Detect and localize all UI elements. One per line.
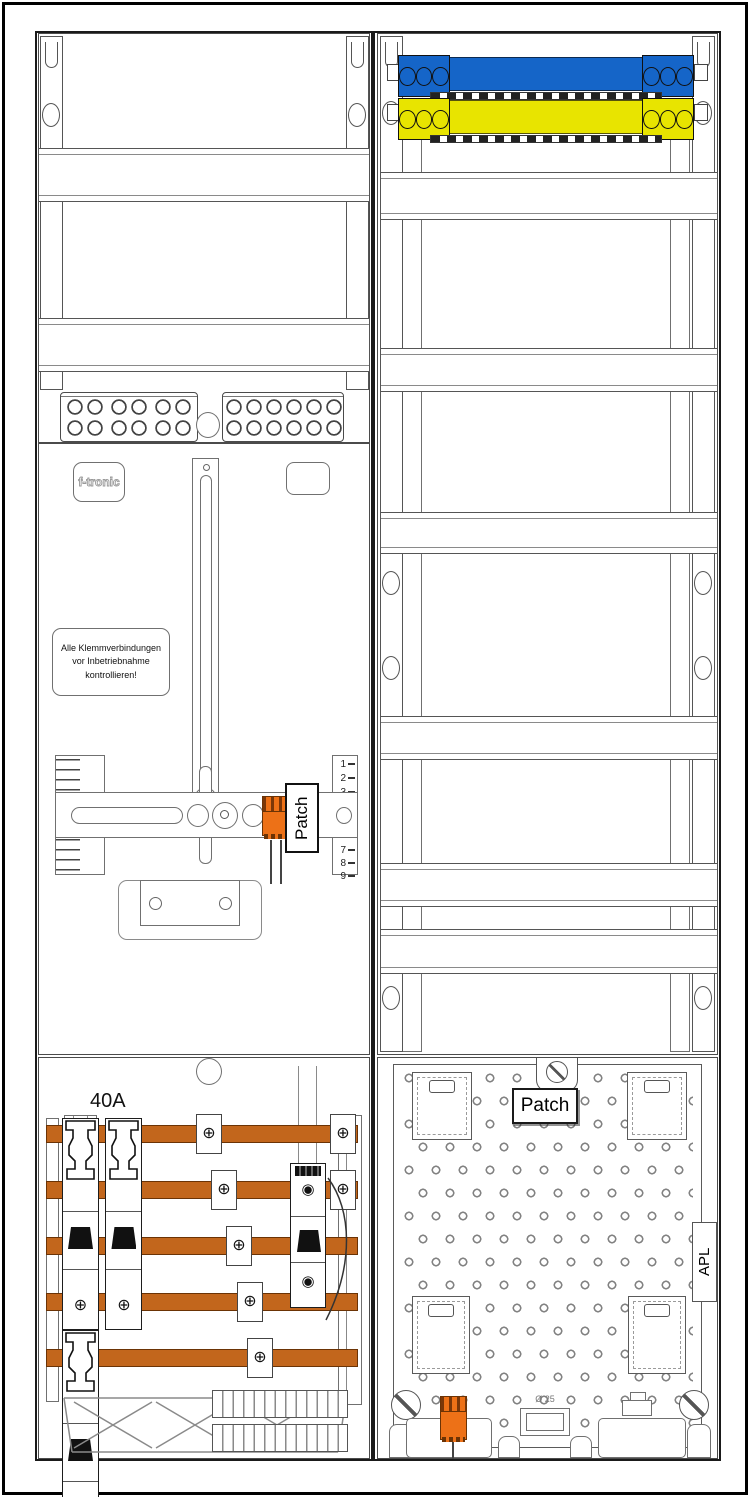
fuse-link-icon [63,1331,98,1393]
screw-icon: ⊕ [202,1126,215,1142]
ruler-number: 7 [340,845,346,856]
terminal-holes [153,396,193,438]
sls-switch: ⊕ [105,1118,142,1330]
cutout-slot [428,1304,454,1317]
terminal-hole [660,110,677,129]
terminal-hole [416,110,433,129]
terminal-screw: ⊕ [63,1297,98,1315]
pe-bar-teeth [430,135,662,143]
bar-clip [694,104,708,121]
din-rail-row [380,512,718,554]
pe-bar-endblock [642,98,694,140]
patch-plate-label: Patch [512,1088,578,1124]
blank-badge [286,462,330,495]
wire [270,840,272,884]
terminal-strip-row [212,1390,348,1418]
neutral-bar-endblock [398,55,450,97]
patch-connector-label: Patch [285,783,319,853]
bottom-cutout [598,1418,686,1458]
sls-switch: ⊕ [62,1118,99,1330]
patch-connector [440,1412,467,1440]
screw-icon: ◉ [301,1273,314,1290]
terminal-holes [109,396,149,438]
terminal-hole [676,67,693,86]
grommet-size-label: Ø 25 [518,1394,572,1404]
terminal-hole [416,67,433,86]
hole [149,897,162,910]
pe-busbar [398,100,694,134]
hole [219,897,232,910]
grommet-inner [526,1413,564,1431]
divider-line [63,1481,98,1482]
rail-hole [382,656,400,680]
pe-bar-endblock [398,98,450,140]
screw-icon: ⊕ [232,1238,245,1254]
terminal-screw: ⊕ [106,1297,141,1315]
plate-cutout [412,1296,470,1374]
ruler-mark: 7 [340,844,355,856]
busbar-clamp: ⊕ [247,1338,273,1378]
rail-hole [694,571,712,595]
inner-post-left [402,130,422,1052]
fuse-link-icon [106,1119,141,1181]
din-rail-row [380,348,718,392]
divider-line [106,1269,141,1270]
hole [187,804,209,827]
mcb-clamp [295,1166,321,1176]
fuse-rating-label: 40A [90,1090,126,1113]
rail-hole [42,103,60,127]
wire [280,840,282,884]
end-ring [336,807,352,824]
plate-cutout [628,1296,686,1374]
patch-connector-teeth [442,1437,465,1442]
neutral-busbar [398,57,694,91]
terminal-holes [65,396,105,438]
column-divider [371,33,375,1459]
terminal-block-left [60,392,198,442]
terminal-holes [284,396,342,438]
left-top-frame [38,33,370,443]
brand-badge: f-tronic [73,462,125,502]
sls-switch-group: ⊕ ⊕ ⊕ [62,1118,177,1328]
terminal-block-right [222,392,344,442]
divider-line [63,1211,98,1212]
patch-connector-cap [440,1396,467,1412]
cable-grommet [196,412,220,438]
terminal-hole [399,67,416,86]
neutral-bar-endblock [642,55,694,97]
screw-icon: ◉ [301,1181,314,1198]
rail-slot [351,42,364,68]
adjust-slot [71,807,183,824]
screw-icon: ⊕ [253,1350,266,1366]
screw-icon: ⊕ [74,1297,87,1314]
warning-label: Alle Klemmverbindungen vor Inbetriebnahm… [52,628,170,696]
grommet-25 [520,1408,570,1436]
busbar-clamp: ⊕ [226,1226,252,1266]
bar-clip [694,64,708,81]
hole [203,464,210,471]
ruler-mark: 2 [340,772,355,784]
wire-arc [320,1170,365,1345]
rail-hole [382,986,400,1010]
guide-line [316,1066,317,1166]
rail-hole [382,571,400,595]
busbar-clamp: ⊕ [211,1170,237,1210]
neutral-bar-teeth [430,92,662,100]
cable-tab [570,1436,592,1458]
screw-icon [546,1061,568,1083]
corner-screw-icon [391,1390,421,1420]
warning-line-3: kontrollieren! [85,669,137,682]
top-notch [536,1058,578,1092]
brand-label: f-tronic [78,475,119,489]
plate-cutout [412,1072,472,1140]
divider-line [63,1269,98,1270]
cutout-slot [644,1304,670,1317]
terminal-hole [676,110,693,129]
screw-icon: ⊕ [336,1126,349,1142]
busbar-clamp: ⊕ [237,1282,263,1322]
din-rail-row [380,863,718,907]
terminal-holes [224,396,282,438]
terminal-hole [399,110,416,129]
ruler-number: 8 [340,858,346,869]
terminal-strip-row [212,1424,348,1452]
din-rail-row [38,318,370,372]
mounting-plate-inner [140,880,240,926]
cable-tab [498,1436,520,1458]
top-screw-hole [196,1058,222,1085]
inner-post-right [670,130,690,1052]
din-rail-row [380,172,718,220]
din-rail-row [38,148,370,202]
fuse-toggle [68,1227,93,1249]
din-rail-row [380,716,718,760]
guide-line [298,1066,299,1166]
screw-icon: ⊕ [243,1294,256,1310]
rail-hole [694,986,712,1010]
cutout-slot [429,1080,455,1093]
terminal-hole [643,110,660,129]
busbar-clamp: ⊕ [330,1114,356,1154]
wire [452,1442,454,1459]
cabinet-drawing: f-tronic Alle Klemmverbindungen vor Inbe… [0,0,750,1497]
din-rail-row [380,929,718,974]
ruler-mark: 8 [340,857,355,869]
terminal-hole [660,67,677,86]
warning-line-1: Alle Klemmverbindungen [61,642,161,655]
terminal-hole [432,67,449,86]
ruler-mark: 9 [340,870,355,882]
corner-tab [687,1424,711,1458]
screw-icon: ⊕ [117,1297,130,1314]
screw-icon: ⊕ [217,1182,230,1198]
cutout-slot [644,1080,670,1093]
busbar-clamp: ⊕ [196,1114,222,1154]
rail-slot [45,42,58,68]
slot [200,475,212,793]
fuse-link-icon [63,1119,98,1181]
terminal-hole [643,67,660,86]
divider-line [106,1211,141,1212]
ruler-mark: 1 [340,758,355,770]
fuse-toggle [111,1227,136,1249]
warning-line-2: vor Inbetriebnahme [72,655,150,668]
ruler-number: 2 [340,773,346,784]
apl-label: APL [692,1222,717,1302]
rail-hole [348,103,366,127]
ruler-number: 1 [340,759,346,770]
terminal-hole [432,110,449,129]
mcb-toggle [297,1230,321,1252]
bracket-base [622,1400,652,1416]
rail-hole [694,656,712,680]
plate-cutout [627,1072,687,1140]
center-bolt-inner [220,810,229,819]
hole [242,804,264,827]
corner-screw-icon [679,1390,709,1420]
ruler-number: 9 [340,871,346,882]
